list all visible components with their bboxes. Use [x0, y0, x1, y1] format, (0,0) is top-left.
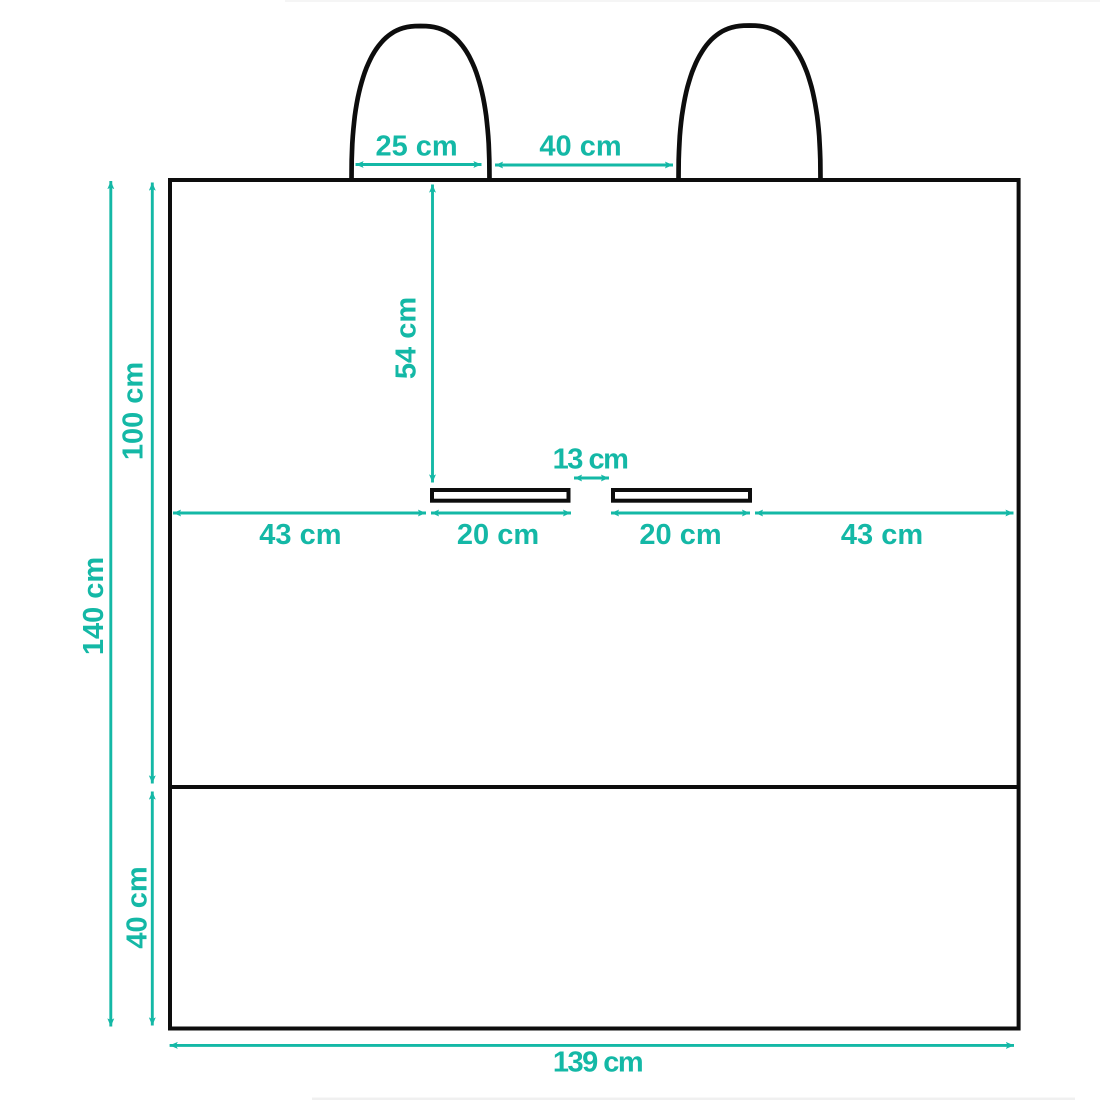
- svg-text:25 cm: 25 cm: [375, 131, 457, 163]
- svg-text:20 cm: 20 cm: [457, 519, 539, 551]
- svg-text:139 cm: 139 cm: [553, 1047, 642, 1079]
- svg-text:140 cm: 140 cm: [78, 557, 110, 655]
- svg-text:20 cm: 20 cm: [639, 519, 721, 551]
- svg-text:43 cm: 43 cm: [259, 519, 341, 551]
- svg-text:40 cm: 40 cm: [122, 866, 154, 948]
- svg-text:13 cm: 13 cm: [553, 444, 628, 476]
- svg-text:100 cm: 100 cm: [118, 362, 150, 460]
- svg-text:43 cm: 43 cm: [841, 519, 923, 551]
- svg-text:54 cm: 54 cm: [391, 297, 423, 379]
- svg-text:40 cm: 40 cm: [539, 131, 621, 163]
